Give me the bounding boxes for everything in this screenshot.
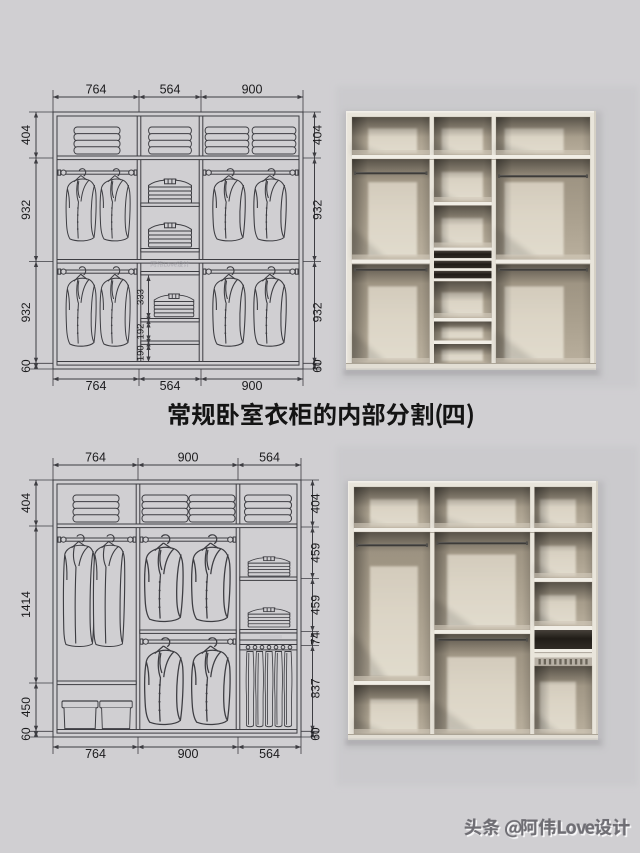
svg-text:404: 404 xyxy=(19,493,33,513)
svg-text:837: 837 xyxy=(309,678,323,698)
svg-text:1414: 1414 xyxy=(19,591,33,618)
svg-text:900: 900 xyxy=(178,451,199,465)
svg-text:932: 932 xyxy=(19,302,33,322)
svg-text:932: 932 xyxy=(19,199,33,219)
svg-text:764: 764 xyxy=(86,83,107,97)
svg-text:192: 192 xyxy=(136,324,147,340)
svg-text:564: 564 xyxy=(160,379,181,393)
svg-text:60: 60 xyxy=(19,727,33,741)
svg-text:74: 74 xyxy=(309,632,323,646)
svg-text:404: 404 xyxy=(311,125,325,145)
svg-text:564: 564 xyxy=(160,83,181,97)
svg-text:60: 60 xyxy=(19,359,33,373)
svg-text:450: 450 xyxy=(19,697,33,717)
svg-text:190: 190 xyxy=(136,345,147,361)
svg-text:564: 564 xyxy=(259,747,280,761)
svg-text:333: 333 xyxy=(136,289,147,305)
svg-text:764: 764 xyxy=(86,379,107,393)
svg-text:459: 459 xyxy=(309,595,323,615)
svg-text:900: 900 xyxy=(242,83,263,97)
svg-text:900: 900 xyxy=(242,379,263,393)
svg-text:60: 60 xyxy=(311,359,325,373)
svg-text:404: 404 xyxy=(19,125,33,145)
svg-text:459: 459 xyxy=(309,542,323,562)
svg-text:764: 764 xyxy=(85,747,106,761)
svg-text:60: 60 xyxy=(309,727,323,741)
svg-text:764: 764 xyxy=(85,451,106,465)
svg-text:404: 404 xyxy=(309,493,323,513)
svg-text:932: 932 xyxy=(311,302,325,322)
svg-text:564: 564 xyxy=(259,451,280,465)
svg-text:932: 932 xyxy=(311,199,325,219)
svg-text:900: 900 xyxy=(178,747,199,761)
